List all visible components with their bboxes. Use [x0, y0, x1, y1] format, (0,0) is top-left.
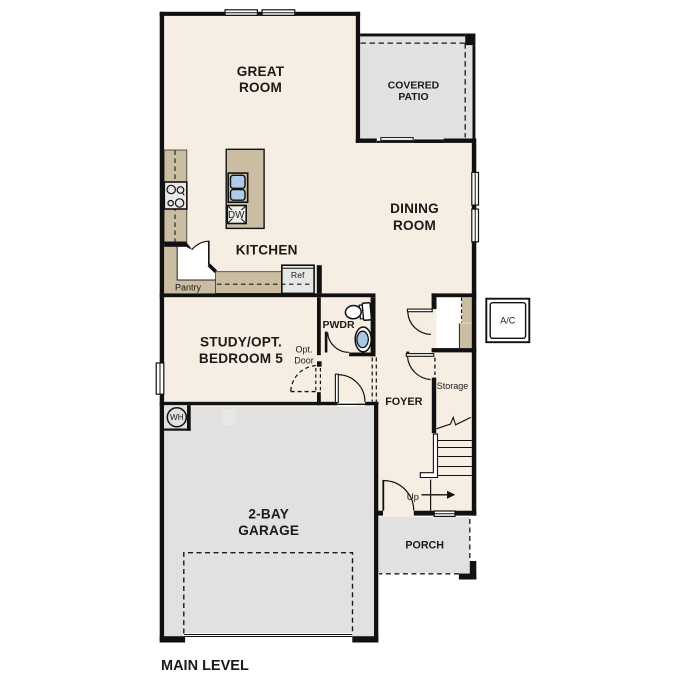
svg-text:MAIN LEVEL: MAIN LEVEL — [161, 658, 249, 674]
svg-text:STUDY/OPT.: STUDY/OPT. — [200, 334, 282, 349]
svg-text:FOYER: FOYER — [385, 396, 422, 408]
svg-text:Up: Up — [407, 492, 419, 503]
svg-text:PWDR: PWDR — [322, 319, 354, 331]
svg-text:A/C: A/C — [500, 316, 516, 326]
svg-text:WH: WH — [170, 413, 184, 422]
svg-text:Opt.: Opt. — [295, 345, 312, 355]
svg-text:ROOM: ROOM — [393, 218, 436, 233]
svg-text:BEDROOM 5: BEDROOM 5 — [199, 351, 283, 366]
svg-text:Pantry: Pantry — [175, 282, 202, 292]
svg-text:KITCHEN: KITCHEN — [236, 243, 298, 258]
svg-text:ROOM: ROOM — [239, 80, 282, 95]
svg-text:DW: DW — [228, 210, 245, 221]
svg-text:PATIO: PATIO — [398, 92, 428, 103]
svg-text:Ref: Ref — [291, 270, 305, 280]
svg-text:GREAT: GREAT — [237, 64, 285, 79]
svg-text:2-BAY: 2-BAY — [248, 507, 289, 522]
svg-text:Door: Door — [294, 356, 314, 366]
svg-text:Storage: Storage — [437, 381, 469, 391]
svg-text:COVERED: COVERED — [388, 81, 440, 92]
svg-text:PORCH: PORCH — [405, 539, 444, 551]
svg-text:GARAGE: GARAGE — [238, 523, 299, 538]
svg-text:DINING: DINING — [390, 201, 439, 216]
